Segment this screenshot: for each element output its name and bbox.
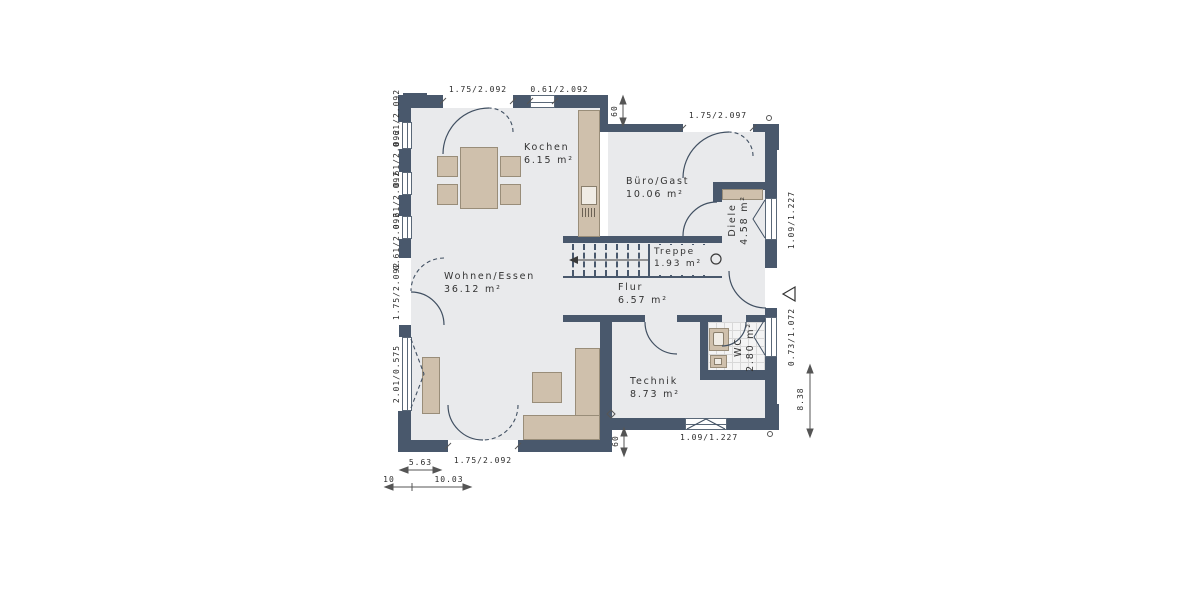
room-label-wc-area: 2.80 m² bbox=[745, 307, 757, 387]
dim-arrow bbox=[807, 365, 813, 373]
stair-bottom-edge bbox=[563, 276, 722, 278]
stair-tread bbox=[572, 244, 574, 276]
room-label-buero: Büro/Gast 10.06 m² bbox=[626, 176, 689, 202]
room-name: Kochen bbox=[524, 142, 574, 155]
window-glass-line bbox=[407, 217, 408, 238]
window-glass-line bbox=[771, 199, 772, 239]
dim-label-left-door: 1.75/2.092 bbox=[390, 251, 402, 331]
door-entrance bbox=[765, 268, 777, 308]
window-wc bbox=[765, 317, 777, 357]
dim-label-height-total: 8.38 bbox=[794, 359, 806, 439]
dim-arrow bbox=[433, 467, 441, 473]
dim-label-top-door: 1.75/2.092 bbox=[443, 85, 513, 94]
wc-toilet-seat bbox=[714, 358, 722, 365]
room-label-diele-area: 4.58 m² bbox=[739, 180, 751, 260]
wc-toilet bbox=[710, 355, 727, 368]
dim-arrow bbox=[385, 484, 393, 490]
wall-right-corner-top bbox=[765, 124, 779, 150]
room-name: Flur bbox=[618, 282, 668, 295]
coffee-table bbox=[532, 372, 562, 403]
chair bbox=[437, 156, 458, 177]
downpipe-marker-bottom bbox=[768, 432, 773, 437]
window-left-2 bbox=[402, 172, 412, 195]
dim-label-buero-door: 1.75/2.097 bbox=[683, 111, 753, 120]
wall-stair-top bbox=[563, 236, 722, 243]
room-area: 6.15 m² bbox=[524, 155, 574, 168]
room-label-kochen: Kochen 6.15 m² bbox=[524, 142, 574, 168]
dim-label-step-top: 60 bbox=[608, 71, 620, 151]
room-name: Wohnen/Essen bbox=[444, 271, 535, 284]
room-area: 6.57 m² bbox=[618, 295, 668, 308]
kitchen-stove bbox=[581, 186, 597, 205]
room-area: 1.93 m² bbox=[654, 258, 702, 270]
window-technik bbox=[685, 418, 727, 430]
room-label-diele-name: Diele bbox=[727, 180, 739, 260]
stair-tread bbox=[583, 244, 585, 276]
window-glass-line bbox=[407, 123, 408, 148]
room-area: 8.73 m² bbox=[630, 389, 680, 402]
window-glass-line bbox=[407, 338, 408, 410]
dim-label-width-partial: 5.63 bbox=[398, 458, 443, 467]
window-left-1 bbox=[402, 122, 412, 149]
room-name: Technik bbox=[630, 376, 680, 389]
room-area: 2.80 m² bbox=[745, 322, 758, 372]
dim-label-width-total: 10.03 bbox=[428, 475, 470, 484]
stair-tread bbox=[605, 244, 607, 276]
window-top bbox=[530, 95, 555, 108]
window-left-large bbox=[402, 337, 412, 411]
room-area: 10.06 m² bbox=[626, 189, 689, 202]
dim-arrow bbox=[463, 484, 471, 490]
stair-tread bbox=[594, 244, 596, 276]
room-area: 36.12 m² bbox=[444, 284, 535, 297]
dim-label-left-big-window: 2.01/0.575 bbox=[390, 334, 402, 414]
floorplan-canvas: Kochen 6.15 m² Büro/Gast 10.06 m² Wohnen… bbox=[0, 0, 1200, 600]
chair bbox=[500, 184, 521, 205]
window-diele bbox=[765, 198, 777, 240]
room-label-treppe: Treppe 1.93 m² bbox=[654, 246, 702, 270]
room-name: Büro/Gast bbox=[626, 176, 689, 189]
sofa-l-horizontal bbox=[523, 415, 600, 440]
dining-table bbox=[460, 147, 498, 209]
room-label-technik: Technik 8.73 m² bbox=[630, 376, 680, 402]
dim-label-width-left: 10 bbox=[378, 475, 400, 484]
room-name: WC bbox=[733, 337, 746, 357]
room-area: 4.58 m² bbox=[739, 195, 752, 245]
window-left-3 bbox=[402, 216, 412, 239]
dim-label-bottom-door: 1.75/2.092 bbox=[448, 456, 518, 465]
door-buero-garden bbox=[683, 124, 753, 132]
window-glass-line bbox=[407, 173, 408, 194]
kitchen-oven-vents bbox=[582, 208, 596, 217]
wc-washbasin bbox=[709, 328, 729, 351]
chair bbox=[500, 156, 521, 177]
window-glass-line bbox=[686, 424, 726, 425]
room-name: Diele bbox=[727, 203, 740, 236]
kitchen-counter bbox=[578, 110, 600, 237]
stair-tread bbox=[638, 244, 640, 276]
wc-washbasin-bowl bbox=[713, 332, 724, 346]
dim-arrow bbox=[620, 96, 626, 104]
dim-arrow bbox=[807, 429, 813, 437]
dim-arrow bbox=[400, 467, 408, 473]
room-label-wohnen: Wohnen/Essen 36.12 m² bbox=[444, 271, 535, 297]
dim-label-technik-window: 1.09/1.227 bbox=[680, 433, 732, 442]
dim-label-diele-window: 1.09/1.227 bbox=[785, 180, 797, 260]
door-terrace-bottom bbox=[448, 440, 518, 452]
downpipe-marker-top bbox=[767, 116, 772, 121]
window-glass-line bbox=[771, 318, 772, 356]
stair-tread bbox=[627, 244, 629, 276]
room-label-wc-name: WC bbox=[733, 307, 745, 387]
door-terrace-left bbox=[403, 258, 411, 325]
stair-tread bbox=[616, 244, 618, 276]
window-glass-line bbox=[531, 102, 554, 103]
sofa-left bbox=[422, 357, 440, 414]
room-label-flur: Flur 6.57 m² bbox=[618, 282, 668, 308]
chair bbox=[437, 184, 458, 205]
dim-label-top-window: 0.61/2.092 bbox=[527, 85, 592, 94]
dim-arrow bbox=[621, 448, 627, 456]
room-name: Treppe bbox=[654, 246, 702, 258]
wall-flur-south-west bbox=[563, 315, 645, 322]
door-terrace-top bbox=[443, 95, 513, 108]
dim-label-step-bottom: 60 bbox=[609, 401, 621, 481]
wall-wc-north-a bbox=[708, 315, 722, 322]
wall-step-top bbox=[600, 95, 608, 132]
